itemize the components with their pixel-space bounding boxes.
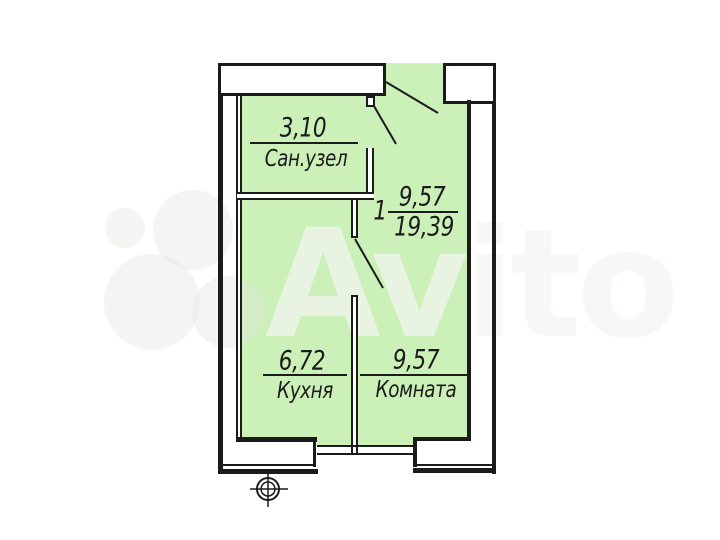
wall-left-inner bbox=[236, 96, 242, 442]
porch-left-line-thin bbox=[223, 464, 313, 466]
bathroom-label: Сан.узел bbox=[265, 146, 348, 172]
room-label: Комната bbox=[376, 377, 457, 403]
wall-top-right-block bbox=[443, 63, 496, 104]
porch-left-edge bbox=[313, 442, 316, 467]
wall-right-outer bbox=[492, 63, 496, 474]
unit-number: 1 bbox=[373, 196, 386, 227]
watermark-bubble bbox=[192, 276, 264, 348]
wall-top-band bbox=[218, 63, 386, 96]
room-area-value: 9,57 bbox=[393, 345, 440, 376]
wall-left-outer bbox=[218, 63, 223, 474]
kitchen-area-value: 6,72 bbox=[279, 346, 326, 377]
porch-right-line-thick bbox=[413, 468, 496, 473]
wall-right-inner bbox=[467, 100, 471, 441]
watermark-bubble bbox=[105, 208, 145, 248]
unit-living-area-value: 9,57 bbox=[399, 182, 446, 213]
wall-bathroom-door-jamb bbox=[366, 96, 375, 107]
wall-bathroom-right bbox=[366, 148, 374, 192]
unit-total-area-value: 19,39 bbox=[394, 212, 454, 243]
floor-plan: Avito 3,10 Сан.узел 1 9,57 19,39 6,72 bbox=[0, 0, 720, 540]
wall-room-bottom bbox=[413, 437, 471, 441]
wall-kitchen-bottom bbox=[237, 437, 317, 442]
wall-bathroom-bottom bbox=[237, 192, 374, 200]
wall-kitchen-room-partition bbox=[351, 295, 358, 455]
porch-right-line-thin bbox=[417, 464, 492, 466]
kitchen-label: Кухня bbox=[277, 378, 333, 404]
wall-hall-stub bbox=[351, 200, 358, 238]
window-line-inner bbox=[317, 453, 413, 455]
window-line-outer bbox=[317, 445, 413, 447]
watermark-bubble bbox=[104, 254, 200, 350]
porch-left-line-thick bbox=[218, 469, 318, 474]
bathroom-area-value: 3,10 bbox=[280, 113, 327, 144]
